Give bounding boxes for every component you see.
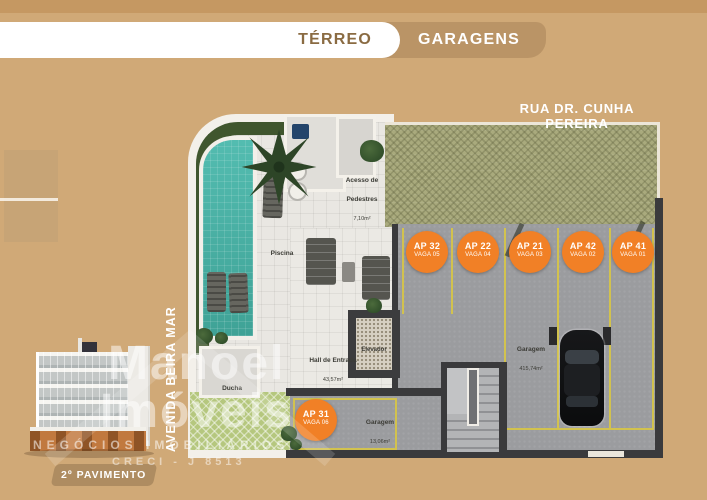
tab-garagens[interactable]: GARAGENS [385, 22, 546, 58]
top-strip [0, 0, 707, 13]
parking-spot-marker: AP 41 VAGA 01 [612, 231, 654, 273]
stair-landing [447, 368, 469, 414]
tab-garagens-label: GARAGENS [418, 22, 520, 58]
parking-spot-marker: AP 32 VAGA 05 [406, 231, 448, 273]
watermark-tagline: NEGÓCIOS IMOBILIÁRIOS [33, 438, 289, 452]
bush-icon [360, 140, 384, 162]
sofa-icon [306, 238, 336, 285]
car-windshield [565, 350, 599, 364]
label-acesso-pedestres: Acesso de Pedestres 7,10m² [330, 168, 394, 226]
street-label-left: AVENIDA BEIRA MAR [164, 298, 178, 460]
floor-plan-page: GARAGENS TÉRREO [0, 0, 707, 500]
wheel-stop [603, 327, 611, 345]
street-lane-line [0, 198, 58, 201]
watermark-brand-line1: Manoel [108, 336, 285, 391]
label-garagem-vaga: Garagem 13,06m² [352, 410, 408, 448]
label-garagem: Garagem 415,74m² [503, 337, 559, 375]
plant-icon [366, 298, 382, 313]
parking-line [451, 228, 453, 314]
pool-lounger [207, 272, 226, 312]
tab-terreo-label: TÉRREO [298, 22, 372, 58]
parking-line [504, 428, 654, 430]
pool-lounger [228, 273, 248, 314]
label-elevador: Elevador [350, 337, 398, 356]
palm-tree-icon [240, 128, 318, 206]
parking-line [402, 228, 404, 314]
stair-wall-right [499, 362, 507, 454]
car-rear-window [566, 396, 598, 407]
street-label-top: RUA DR. CUNHA PEREIRA [487, 101, 667, 131]
car-roof [564, 364, 600, 396]
staircase [447, 368, 499, 452]
wall-right [655, 198, 663, 458]
parking-line [557, 228, 559, 428]
parking-spot-marker: AP 22 VAGA 04 [457, 231, 499, 273]
garage-gate [588, 451, 624, 457]
label-piscina: Piscina [258, 241, 306, 260]
parking-spot-marker: AP 21 VAGA 03 [509, 231, 551, 273]
street-garden [385, 122, 660, 227]
parking-spot-marker: AP 42 VAGA 02 [562, 231, 604, 273]
watermark-creci: CRECI - J 8513 [112, 456, 246, 468]
car-top-view [560, 330, 604, 426]
watermark-brand-line2: Imóveis [100, 384, 293, 439]
sofa-icon [362, 256, 390, 300]
coffee-table-icon [342, 262, 355, 282]
stair-rail [467, 368, 479, 426]
street-pavement [4, 150, 58, 242]
tab-terreo[interactable]: TÉRREO [0, 22, 400, 58]
